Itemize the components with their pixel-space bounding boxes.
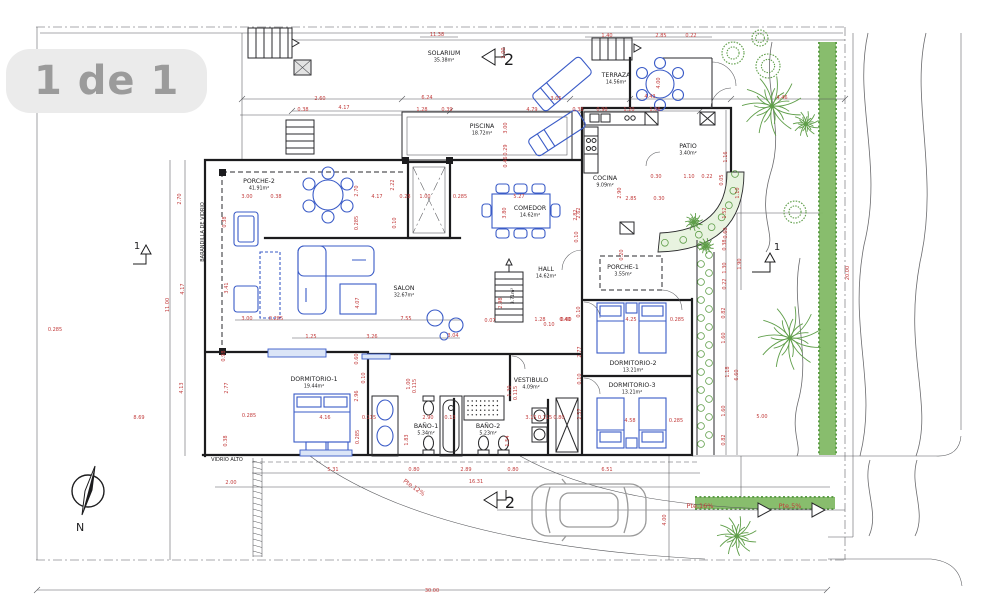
dimension-label: 6.60 [734,369,740,380]
dimension-label: 0.38 [572,107,583,113]
dimension-label: 0.80 [408,467,419,473]
north-compass: N [72,466,104,534]
dimension-label: 4.43 [644,94,655,100]
sun-lounger [531,56,593,113]
dimension-label: 1.18 [725,366,731,377]
dimension-label: 0.115 [513,386,519,400]
dimension-label: 5.31 [327,467,338,473]
dimension-label: 1.10 [683,174,694,180]
dimension-label: 0.29 [503,144,509,155]
dimension-label: 1.06 [649,107,660,113]
dimension-label: 0.285 [354,216,360,230]
dimension-label: 0.20 [619,249,625,260]
room-name: PORCHE-1 [607,264,639,271]
palm-plant [742,76,801,135]
dimension-label: 1.20 [623,107,634,113]
section-marker-number: 2 [505,493,515,512]
room-name: HALL [538,266,554,273]
sofa [298,246,376,314]
dimension-label: 1.54 [505,435,511,446]
window [362,354,390,359]
section-marker-number: 1 [774,242,780,253]
dimension-label: 4.46 [776,95,787,101]
dimension-label: 2.00 [225,480,236,486]
room-name: SALON [393,285,414,292]
dimension-label: 2.89 [460,467,471,473]
dimension-label: 2.70 [354,185,360,196]
dimension-label: 4.16 [319,415,330,421]
dimension-label: 2.57 [577,408,583,419]
annotation-label: Pte,16% [687,502,714,510]
dimension-label: 1.10 [735,187,741,198]
armchair [234,286,258,312]
dimension-label: 0.10 [361,372,367,383]
dimension-label: 0.80 [507,467,518,473]
dimension-label: 1.30 [722,262,728,273]
dimension-label: 2.77 [224,382,230,393]
room-name: BAÑO-1 [414,421,438,430]
dimension-label: 2.77 [577,346,583,357]
annotation-label: VIDRIO ALTO [211,457,243,463]
dimension-label: 5.27 [513,194,524,200]
room-name: COCINA [593,175,618,182]
dimension-label: 0.90 [596,107,607,113]
dimension-label: 2.22 [390,179,396,190]
dimension-label: 1.00 [419,194,430,200]
dimension-label: 0.38 [722,239,728,250]
bush-plant [756,54,780,78]
dimension-label: 0.60 [354,353,360,364]
room-name: PISCINA [470,123,495,130]
room-area: 41.91m² [249,186,269,192]
dimension-label: 4.00 [662,514,668,525]
dimension-label: 1.28 [416,107,427,113]
room-area: 14.62m² [520,213,540,219]
dimension-label: 7.55 [400,316,411,322]
dimension-label: 0.05 [719,174,725,185]
dimension-label: 4.25 [625,317,636,323]
dimension-label: 0.285 [453,194,467,200]
dimension-label: 3.05 [550,96,561,102]
window [268,349,326,357]
retaining-wall-hatch [253,461,262,554]
dimension-label: 0.38 [223,435,229,446]
annotation-label: Pte,5% [779,502,802,510]
palm-plant [717,516,756,556]
dimension-label: 4.58 [624,418,635,424]
dimension-label: 0.285 [48,327,62,333]
dimension-label: 0.10 [574,231,580,242]
dimension-label: 0.10 [543,322,554,328]
dimension-label: 3.41 [224,282,230,293]
dimension-label: 2.70 [177,193,183,204]
dimension-label: 0.22 [685,33,696,39]
dimension-label: 3.00 [241,194,252,200]
room-area: 14.56m² [606,80,626,86]
room-name: DORMITORIO-1 [290,376,337,383]
dimension-label: 1.40 [601,33,612,39]
dimension-label: 30.00 [425,588,439,594]
dimension-label: 2.60 [314,96,325,102]
room-name: PATIO [679,143,697,150]
dimension-label: 3.04 [447,333,458,339]
dimension-label: 0.28 [399,194,410,200]
page-indicator: 1 de 1 [6,49,207,113]
room-area: 3.55m² [614,272,631,278]
dimension-label: 8.69 [133,415,144,421]
dimension-label: 0.10 [392,217,398,228]
dimension-label: 3.00 [503,122,509,133]
dimension-label: 11.00 [165,298,171,312]
palm-plant [758,306,821,369]
dimension-label: 2.62 [576,207,582,218]
dimension-label: 2.96 [354,390,360,401]
lounge-chair [427,310,443,326]
round-table-porche2 [303,167,353,223]
dimension-label: 3.80 [502,207,508,218]
dimension-label: 0.115 [412,379,418,393]
dimension-label: 3.15 [525,415,536,421]
dimension-label: 1.52 [722,207,728,218]
bush-plant [722,42,744,64]
dimension-label: 0.38 [297,107,308,113]
room-area: 3.40m² [679,151,696,157]
dimension-label: 0.115 [538,415,552,421]
room-area: 5.34m² [417,431,434,437]
dimension-label: 4.13 [179,382,185,393]
dimension-label: 0.10 [576,306,582,317]
dimension-label: 4.00 [656,77,662,88]
terrain-lines [766,33,928,536]
dimension-label: 0.82 [721,307,727,318]
dimension-label: 0.13 [444,415,455,421]
compass-north-label: N [76,521,84,534]
room-area: 9.09m² [596,183,613,189]
dimension-label: 0.30 [650,174,661,180]
dimension-label: 11.38 [430,32,444,38]
dimension-label: 20.00 [845,266,851,280]
dimension-label: 0.22 [701,174,712,180]
beds-twin-dorm2 [597,303,666,353]
dimension-label: 0.38 [222,216,228,227]
section-marker-number: 2 [504,50,514,69]
dimension-label: 16.31 [469,479,483,485]
room-area: 13.21m² [622,390,642,396]
elevator-shaft [408,162,450,238]
room-area: 14.62m² [536,274,556,280]
dimension-label: 3.26 [366,334,377,340]
annotation-label: 3.71m² [510,288,516,304]
dimension-label: 0.39 [441,107,452,113]
dimension-label: 0.60 [723,227,729,238]
room-area: 32.67m² [394,293,414,299]
dimension-label: 0.98 [221,350,227,361]
planter-curve [658,172,744,252]
dimension-label: 1.60 [721,332,727,343]
dimension-label: 0.46 [503,156,509,167]
dimension-label: 0.285 [242,413,256,419]
room-name: DORMITORIO-3 [608,382,655,389]
dimension-label: 5.00 [756,414,767,420]
room-name: BAÑO-2 [476,421,500,430]
dimension-label: 4.07 [355,297,361,308]
annotation-label: Pte.12% [402,478,427,498]
dimension-label: 1.16 [723,151,729,162]
dimension-label: 2.85 [625,196,636,202]
dimension-label: 2.90 [422,415,433,421]
dimension-label: 4.79 [526,107,537,113]
dimension-label: 1.25 [305,334,316,340]
room-area: 18.72m² [472,131,492,137]
shelf-unit [260,252,280,318]
chimney-box [294,60,311,75]
room-name: VESTIBULO [514,377,549,384]
room-name: COMEDOR [514,205,547,212]
room-area: 4.09m² [522,385,539,391]
dimension-label: 2.85 [655,33,666,39]
section-marker-number: 1 [134,241,140,252]
dimension-label: 6.51 [601,467,612,473]
dimension-label: 4.17 [180,283,186,294]
dimension-label: 0.07 [484,318,495,324]
section-marker-labels: 2211 [134,50,780,512]
sun-lounger [527,109,587,157]
dimension-label: 3.00 [241,316,252,322]
dimension-label: 2.90 [617,187,623,198]
dimension-label: 2.98 [498,297,504,308]
room-area: 5.23m² [479,431,496,437]
annotation-label: BARANDILLA DE VIDRIO [200,202,206,262]
window [300,450,352,456]
dimension-label: 0.285 [669,418,683,424]
room-name: TERRAZA [601,72,632,79]
dimension-label: 0.285 [670,317,684,323]
dimension-label: 1.90 [737,258,743,269]
bush-plant [752,30,768,46]
bed-double [294,394,350,452]
dimension-label: 0.285 [355,430,361,444]
dimension-label: 0.22 [722,278,728,289]
room-area: 13.21m² [623,368,643,374]
dimension-label: 1.83 [404,434,410,445]
dimension-label: 0.38 [270,194,281,200]
dimension-label: 1.60 [721,405,727,416]
dimension-label: 0.60 [560,317,571,323]
dimension-label: 4.17 [338,105,349,111]
room-area: 19.44m² [304,384,324,390]
room-area: 35.38m² [434,58,454,64]
dimension-label: 0.115 [362,415,376,421]
dimension-label: 6.24 [421,95,432,101]
dimension-label: 0.10 [577,373,583,384]
dimension-label: 0.80 [553,415,564,421]
dimension-label: 0.285 [269,316,283,322]
dimension-label: 0.82 [721,434,727,445]
bush-plant [784,201,806,223]
dimension-label: 4.17 [371,194,382,200]
room-name: SOLARIUM [428,50,461,57]
floor-plan-viewer: N SOLARIUM35.38m²TERRAZA14.56m²PISCINA18… [0,0,992,602]
room-name: PORCHE-2 [243,178,275,185]
dimension-label: 0.30 [653,196,664,202]
hedge-right [819,42,836,455]
room-name: DORMITORIO-2 [609,360,656,367]
